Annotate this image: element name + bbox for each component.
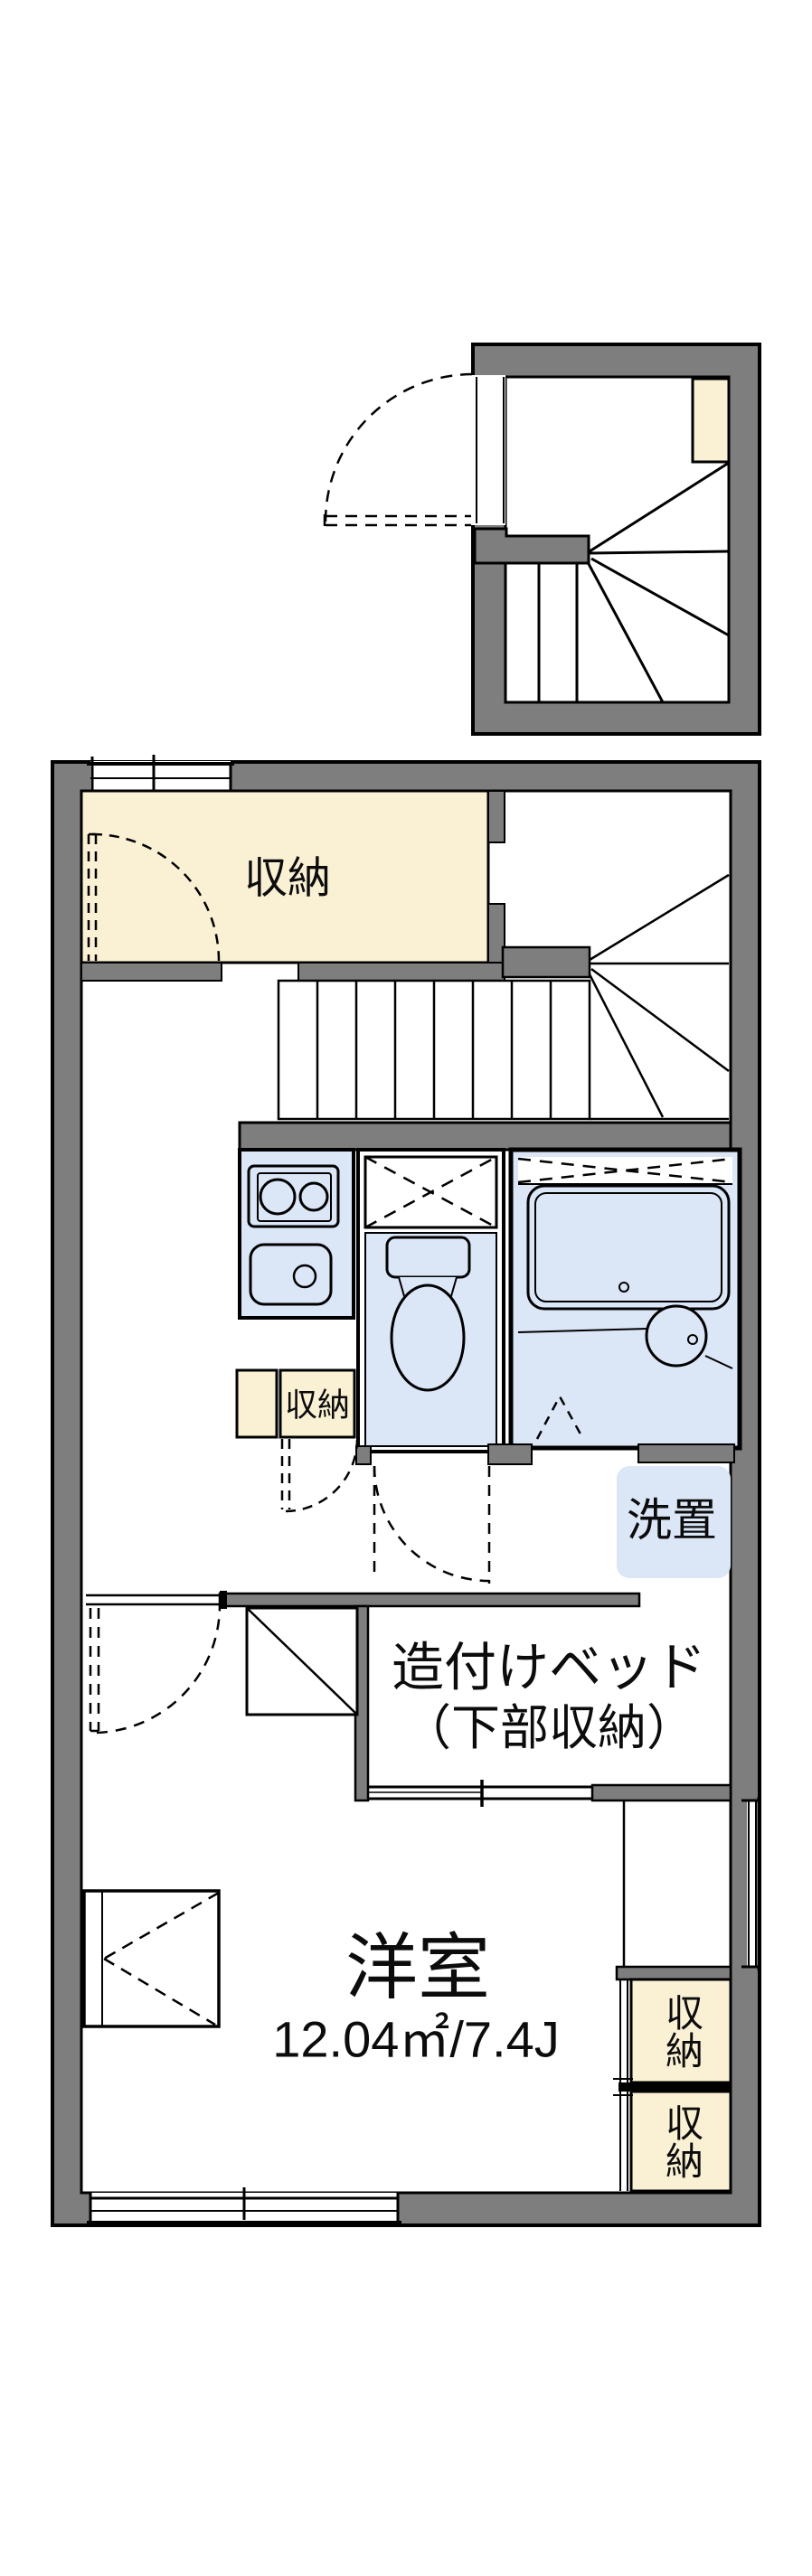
entry-opening: [469, 375, 505, 525]
wash-bowl: [647, 1306, 706, 1366]
storage-room-label: 収納: [244, 855, 331, 903]
main-floor: 収納: [52, 755, 760, 2225]
storage-room: 収納: [81, 791, 505, 981]
bathtub: [528, 1186, 729, 1309]
room-size-label: 12.04㎡/7.4J: [272, 2011, 560, 2068]
burner-right: [300, 1183, 327, 1210]
hall-shelf: [237, 1370, 277, 1437]
floorplan-drawing: 収納: [0, 0, 812, 2576]
sink: [250, 1245, 331, 1304]
wall-stub-left: [356, 1446, 371, 1464]
window-bottom: [87, 2187, 401, 2225]
tub-drain: [619, 1283, 628, 1292]
kitchen: [240, 1150, 354, 1318]
shoe-cabinet: [693, 379, 729, 462]
wall-stub-right: [638, 1444, 734, 1462]
hall-storage-label: 収納: [285, 1387, 350, 1424]
stair-newel-wall-main: [503, 947, 590, 977]
bed-room-bottom-wall: [592, 1785, 731, 1800]
bathroom-top-shelf: [518, 1157, 732, 1184]
closet-upper-label: 収納: [661, 1993, 703, 2069]
upper-stairwell: [325, 344, 760, 734]
bed-label-line1: 造付けベッド: [392, 1639, 706, 1697]
bed-label-line2: （下部収納）: [402, 1701, 695, 1755]
laundry-label: 洗置: [627, 1495, 717, 1546]
laundry-space: 洗置: [617, 1466, 731, 1578]
bed-room-top-wall: [220, 1594, 639, 1606]
faucet: [294, 1265, 316, 1287]
room-name-label: 洋室: [345, 1928, 490, 2008]
closet-lower-label: 収納: [661, 2103, 703, 2179]
hall-cabinet: [247, 1608, 357, 1715]
bathroom: [511, 1150, 740, 1448]
stair-bottom-wall: [240, 1123, 731, 1150]
burner-left: [260, 1180, 295, 1214]
window-seat-cabinet: [84, 1891, 219, 2026]
wall-stub-mid: [488, 1444, 532, 1464]
floorplan-page: 収納: [0, 0, 812, 2576]
toilet-bowl: [392, 1285, 464, 1390]
toilet-tank: [387, 1237, 469, 1277]
entry-door-swing: [325, 374, 473, 527]
toilet-room: [358, 1150, 504, 1452]
